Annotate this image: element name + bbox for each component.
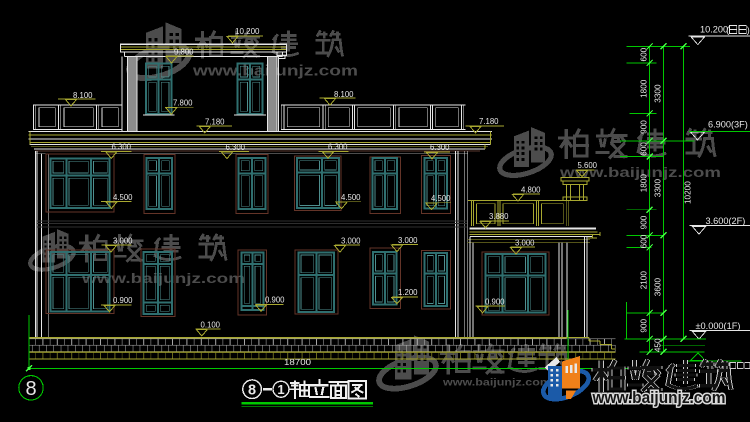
svg-text:450: 450 (653, 338, 662, 352)
svg-text:3600: 3600 (653, 278, 662, 297)
svg-text:0.900: 0.900 (485, 296, 505, 306)
svg-text:3300: 3300 (653, 179, 662, 198)
svg-text:1: 1 (277, 382, 284, 397)
svg-text:9.800: 9.800 (174, 46, 194, 56)
svg-text:8.100: 8.100 (73, 90, 93, 100)
svg-text:0.900: 0.900 (265, 295, 285, 305)
svg-text:600: 600 (640, 142, 649, 156)
svg-text:6.300: 6.300 (328, 142, 348, 152)
svg-text:10200: 10200 (683, 181, 692, 204)
svg-text:www.baijunjz.com: www.baijunjz.com (442, 377, 551, 389)
svg-text:5.600: 5.600 (578, 160, 598, 170)
svg-text:0.100: 0.100 (201, 319, 221, 329)
svg-text:10.200: 10.200 (235, 26, 260, 36)
svg-text:www.baijunjz.com: www.baijunjz.com (592, 389, 726, 407)
svg-text:4.500: 4.500 (341, 192, 361, 202)
svg-text:8.100: 8.100 (334, 89, 354, 99)
svg-text:900: 900 (640, 120, 649, 134)
svg-text:8: 8 (25, 378, 36, 400)
svg-text:3.000: 3.000 (515, 237, 535, 247)
svg-text:7.800: 7.800 (173, 98, 193, 108)
svg-text:3.600(2F): 3.600(2F) (706, 216, 746, 226)
svg-text:3.000: 3.000 (113, 235, 133, 245)
svg-text:8: 8 (248, 382, 256, 398)
svg-text:900: 900 (640, 215, 649, 229)
svg-text:6.300: 6.300 (112, 142, 132, 152)
svg-text:900: 900 (640, 319, 649, 333)
svg-text:4.500: 4.500 (431, 193, 451, 203)
svg-text:1800: 1800 (640, 79, 649, 98)
svg-text:3300: 3300 (653, 84, 662, 103)
svg-text:1800: 1800 (640, 174, 649, 193)
svg-text:3.880: 3.880 (489, 211, 509, 221)
svg-text:7.180: 7.180 (205, 116, 225, 126)
svg-text:7.180: 7.180 (479, 116, 499, 126)
svg-text:6.900(3F): 6.900(3F) (708, 119, 748, 129)
svg-text:2100: 2100 (640, 271, 649, 290)
svg-text:0.900: 0.900 (113, 295, 133, 305)
svg-text:4.500: 4.500 (113, 192, 133, 202)
svg-text:6.300: 6.300 (430, 142, 450, 152)
svg-text:3.000: 3.000 (341, 235, 361, 245)
svg-text:): ) (747, 25, 750, 35)
svg-text:10.200: 10.200 (700, 25, 728, 35)
svg-text:(: ( (726, 25, 729, 35)
svg-text:4.800: 4.800 (521, 184, 541, 194)
svg-text:3.000: 3.000 (398, 235, 418, 245)
svg-text:1.200: 1.200 (398, 287, 418, 297)
svg-text:±0.000(1F): ±0.000(1F) (696, 321, 741, 331)
svg-text:600: 600 (640, 47, 649, 61)
svg-text:18700: 18700 (284, 357, 311, 367)
svg-text:600: 600 (640, 234, 649, 248)
svg-text:6.300: 6.300 (226, 142, 246, 152)
